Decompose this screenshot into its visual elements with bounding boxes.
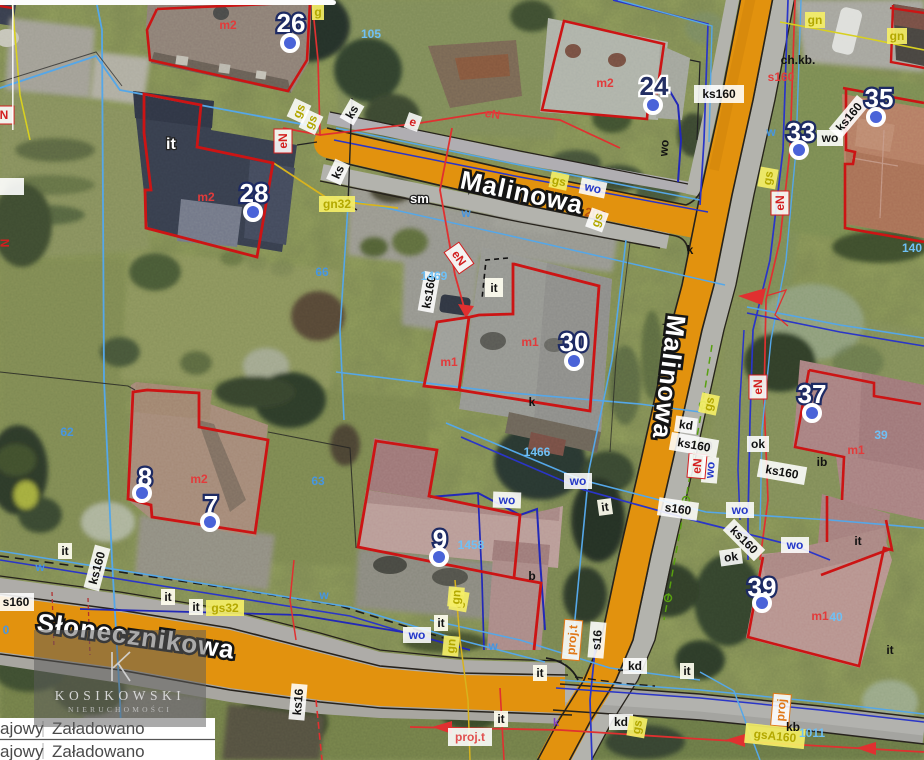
svg-text:eN: eN bbox=[773, 195, 787, 210]
svg-text:b: b bbox=[528, 569, 535, 583]
svg-text:eN: eN bbox=[276, 133, 290, 148]
svg-text:wo: wo bbox=[731, 503, 749, 517]
svg-text:63: 63 bbox=[311, 474, 325, 488]
svg-text:wo: wo bbox=[656, 139, 671, 158]
svg-text:w: w bbox=[460, 206, 471, 220]
svg-text:ajowy: ajowy bbox=[0, 742, 44, 760]
svg-text:gn: gn bbox=[443, 638, 458, 654]
svg-text:w: w bbox=[765, 125, 776, 139]
svg-text:1466: 1466 bbox=[524, 445, 551, 459]
svg-text:gs: gs bbox=[760, 170, 776, 187]
svg-text:w: w bbox=[318, 588, 329, 602]
svg-text:m1: m1 bbox=[847, 443, 865, 457]
svg-text:k: k bbox=[553, 717, 560, 729]
svg-text:wo: wo bbox=[821, 131, 839, 145]
svg-text:it: it bbox=[854, 534, 861, 548]
svg-text:it: it bbox=[164, 590, 171, 604]
svg-text:NIERUCHOMOŚCI: NIERUCHOMOŚCI bbox=[68, 704, 172, 714]
svg-text:140: 140 bbox=[902, 241, 922, 255]
svg-text:gs32: gs32 bbox=[211, 601, 239, 615]
svg-text:kd: kd bbox=[628, 659, 642, 673]
svg-text:gs: gs bbox=[629, 719, 645, 736]
svg-text:g: g bbox=[314, 5, 321, 19]
svg-text:proj.t: proj.t bbox=[564, 624, 581, 655]
svg-text:1011: 1011 bbox=[799, 726, 825, 740]
svg-text:gn: gn bbox=[890, 29, 905, 43]
svg-text:gn32: gn32 bbox=[323, 197, 351, 211]
svg-text:ch.kb.: ch.kb. bbox=[781, 53, 816, 67]
svg-text:proj: proj bbox=[773, 698, 789, 722]
svg-text:105: 105 bbox=[361, 27, 381, 41]
svg-text:it: it bbox=[437, 616, 444, 630]
svg-text:ok: ok bbox=[723, 549, 739, 565]
svg-text:m2: m2 bbox=[197, 190, 215, 204]
svg-text:m2: m2 bbox=[219, 18, 237, 32]
svg-text:eN: eN bbox=[689, 458, 704, 475]
svg-text:eN: eN bbox=[751, 379, 765, 394]
svg-text:it: it bbox=[497, 712, 504, 726]
svg-text:k: k bbox=[529, 395, 536, 409]
svg-text:it: it bbox=[61, 544, 68, 558]
svg-text:wo: wo bbox=[569, 474, 587, 488]
svg-text:w: w bbox=[487, 639, 498, 653]
svg-text:it: it bbox=[683, 664, 690, 678]
svg-text:N: N bbox=[0, 108, 8, 122]
svg-text:s16: s16 bbox=[589, 629, 605, 650]
svg-text:kd: kd bbox=[614, 715, 628, 729]
svg-text:ib: ib bbox=[817, 455, 828, 469]
svg-text:proj.t: proj.t bbox=[455, 730, 485, 744]
svg-text:1458: 1458 bbox=[458, 538, 485, 552]
svg-text:wo: wo bbox=[408, 628, 426, 642]
svg-text:62: 62 bbox=[60, 425, 74, 439]
svg-text:it: it bbox=[886, 643, 893, 657]
svg-text:ks16: ks16 bbox=[290, 688, 306, 716]
svg-text:ks160: ks160 bbox=[702, 87, 736, 101]
svg-text:gn: gn bbox=[448, 589, 463, 605]
svg-text:Załadowano: Załadowano bbox=[52, 742, 145, 760]
svg-text:m1: m1 bbox=[521, 335, 539, 349]
svg-text:m2: m2 bbox=[596, 76, 614, 90]
svg-text:sm: sm bbox=[410, 191, 429, 206]
svg-text:it: it bbox=[490, 281, 497, 295]
svg-text:kb: kb bbox=[786, 720, 800, 734]
svg-text:s160: s160 bbox=[3, 595, 30, 609]
svg-text:N: N bbox=[0, 239, 12, 248]
svg-text:m2: m2 bbox=[190, 472, 208, 486]
svg-text:66: 66 bbox=[315, 265, 329, 279]
svg-text:KOSIKOWSKI: KOSIKOWSKI bbox=[55, 688, 186, 703]
svg-text:it: it bbox=[192, 600, 199, 614]
svg-text:1469: 1469 bbox=[421, 269, 448, 283]
svg-text:s160: s160 bbox=[768, 70, 795, 84]
svg-text:m1: m1 bbox=[440, 355, 458, 369]
svg-text:it: it bbox=[536, 666, 543, 680]
svg-text:kd: kd bbox=[678, 417, 694, 433]
svg-text:eN: eN bbox=[484, 106, 501, 122]
svg-text:39: 39 bbox=[874, 428, 888, 442]
svg-text:m1: m1 bbox=[811, 609, 829, 623]
svg-text:w: w bbox=[34, 560, 45, 574]
svg-text:40: 40 bbox=[829, 610, 843, 624]
svg-text:ok: ok bbox=[751, 437, 765, 451]
svg-text:0: 0 bbox=[3, 623, 10, 637]
svg-text:it: it bbox=[166, 136, 176, 153]
svg-text:k: k bbox=[687, 243, 694, 257]
svg-text:wo: wo bbox=[497, 493, 515, 508]
svg-text:gn: gn bbox=[808, 13, 823, 27]
svg-text:wo: wo bbox=[786, 538, 804, 552]
